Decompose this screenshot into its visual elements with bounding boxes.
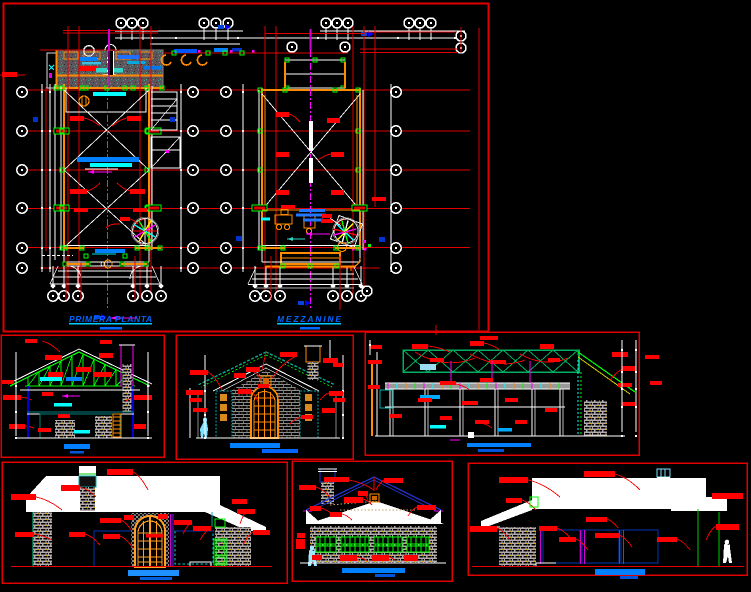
svg-text:MEZZANINE: MEZZANINE [277,314,341,324]
svg-text:PRIMERA PLANTA: PRIMERA PLANTA [69,314,152,324]
